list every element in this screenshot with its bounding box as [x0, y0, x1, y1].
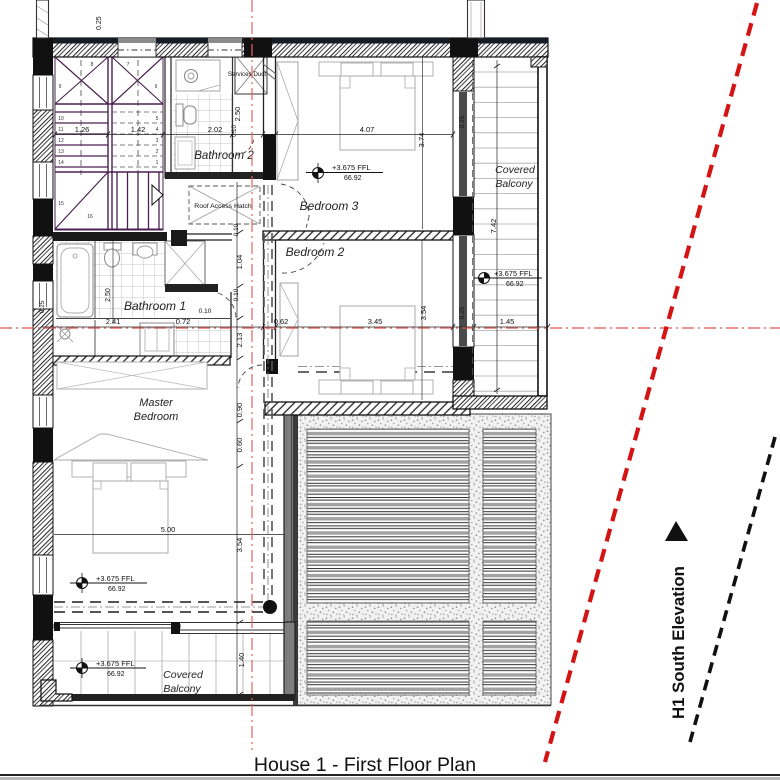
svg-text:Bathroom 2: Bathroom 2 [194, 150, 254, 162]
svg-text:3.74: 3.74 [417, 133, 426, 148]
svg-text:2.41: 2.41 [106, 317, 121, 326]
svg-text:Services Duct: Services Duct [228, 71, 266, 78]
svg-text:1.42: 1.42 [131, 125, 146, 134]
svg-text:Roof Access Hatch: Roof Access Hatch [194, 203, 252, 210]
svg-text:12: 12 [58, 138, 64, 144]
svg-text:0.90: 0.90 [235, 403, 244, 418]
svg-text:15: 15 [58, 201, 64, 207]
svg-text:2.13: 2.13 [235, 333, 244, 348]
svg-text:5.00: 5.00 [161, 525, 176, 534]
svg-text:16: 16 [87, 214, 93, 220]
svg-text:+3.675 FFL: +3.675 FFL [332, 163, 371, 172]
svg-text:Bedroom 2: Bedroom 2 [286, 245, 345, 259]
svg-text:H1 South Elevation: H1 South Elevation [669, 566, 688, 719]
svg-text:0.10: 0.10 [233, 223, 240, 236]
svg-text:0.10: 0.10 [233, 288, 240, 301]
svg-text:66.92: 66.92 [506, 281, 524, 288]
svg-text:1.26: 1.26 [75, 125, 90, 134]
svg-text:0.60: 0.60 [235, 438, 244, 453]
svg-text:1.40: 1.40 [237, 653, 246, 668]
svg-text:7: 7 [127, 62, 130, 68]
svg-text:3.45: 3.45 [368, 317, 383, 326]
svg-text:+3.675 FFL: +3.675 FFL [96, 574, 135, 583]
svg-text:House 1 - First Floor Plan: House 1 - First Floor Plan [254, 754, 476, 776]
svg-text:Bathroom 1: Bathroom 1 [124, 299, 186, 313]
svg-text:2: 2 [156, 149, 159, 155]
svg-text:4.07: 4.07 [360, 125, 375, 134]
svg-text:2.50: 2.50 [233, 107, 242, 122]
svg-text:1: 1 [156, 160, 159, 166]
svg-text:66.92: 66.92 [107, 671, 125, 678]
svg-text:4: 4 [156, 127, 159, 133]
svg-text:Bedroom: Bedroom [134, 411, 179, 423]
svg-text:Covered: Covered [163, 669, 204, 681]
svg-text:66.92: 66.92 [108, 586, 126, 593]
svg-text:13: 13 [58, 149, 64, 155]
svg-text:2.50: 2.50 [105, 288, 112, 302]
svg-text:14: 14 [58, 160, 64, 166]
svg-text:Balcony: Balcony [495, 178, 533, 190]
svg-text:9: 9 [59, 84, 62, 90]
svg-text:0.10: 0.10 [232, 125, 238, 137]
svg-text:3.54: 3.54 [419, 306, 428, 321]
svg-text:3.54: 3.54 [235, 538, 244, 553]
svg-text:0.25: 0.25 [39, 300, 46, 313]
svg-text:1.45: 1.45 [500, 317, 515, 326]
svg-text:11: 11 [58, 127, 63, 133]
svg-text:10: 10 [58, 116, 64, 122]
svg-text:5: 5 [156, 116, 159, 122]
svg-text:Balcony: Balcony [163, 683, 201, 695]
svg-text:66.92: 66.92 [344, 175, 362, 182]
svg-text:0.25: 0.25 [459, 306, 466, 319]
svg-text:0.72: 0.72 [176, 317, 191, 326]
svg-text:0.25: 0.25 [459, 115, 466, 128]
svg-text:0.62: 0.62 [274, 317, 289, 326]
svg-text:3: 3 [156, 138, 159, 144]
svg-text:0.10: 0.10 [199, 308, 212, 315]
svg-text:1.04: 1.04 [235, 255, 244, 270]
svg-text:6: 6 [155, 84, 158, 90]
svg-text:+3.675 FFL: +3.675 FFL [96, 659, 135, 668]
svg-text:+3.675 FFL: +3.675 FFL [494, 269, 533, 278]
svg-text:2.02: 2.02 [208, 125, 223, 134]
svg-text:0.25: 0.25 [96, 16, 103, 30]
svg-text:8: 8 [91, 62, 94, 68]
svg-text:Master: Master [139, 397, 174, 409]
svg-text:7.42: 7.42 [489, 219, 498, 234]
svg-text:Covered: Covered [495, 164, 536, 176]
